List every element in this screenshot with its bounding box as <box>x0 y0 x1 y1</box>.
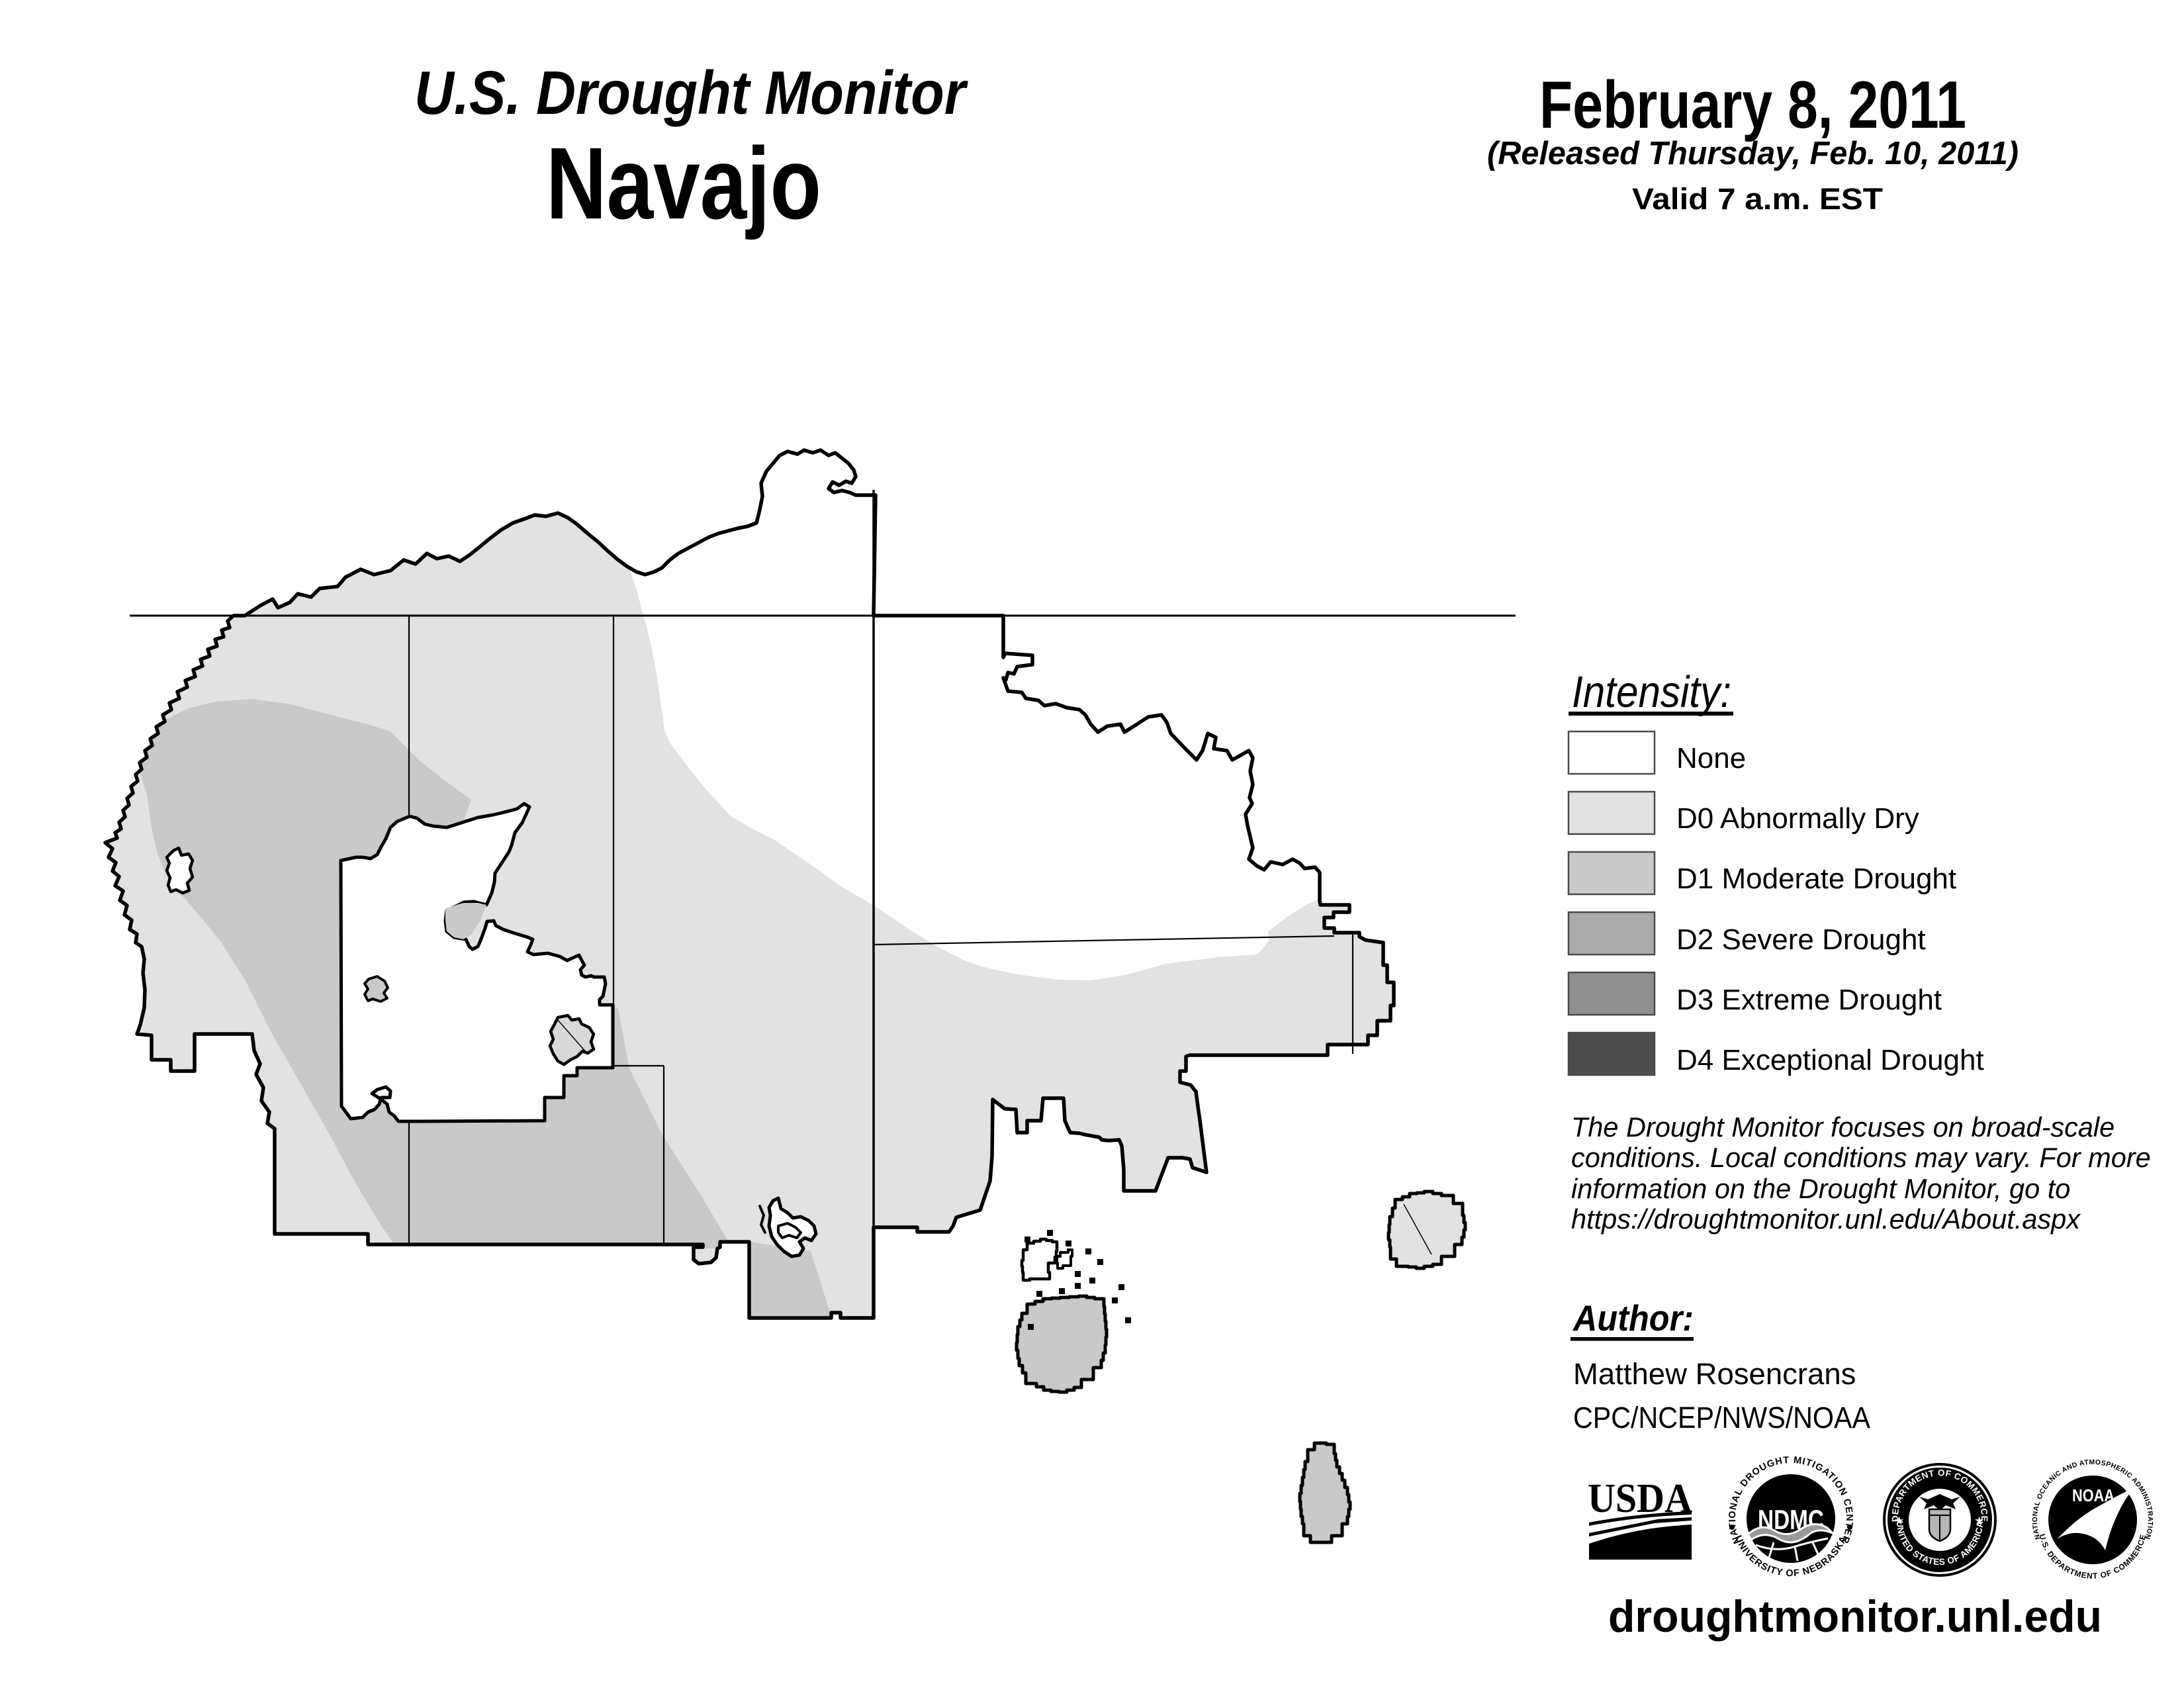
svg-text:Matthew Rosencrans: Matthew Rosencrans <box>1573 1357 1856 1391</box>
svg-text:(Released Thursday, Feb. 10, 2: (Released Thursday, Feb. 10, 2011) <box>1487 136 2019 171</box>
svg-text:D0 Abnormally Dry: D0 Abnormally Dry <box>1676 802 1919 835</box>
svg-text:★: ★ <box>1974 1515 1984 1527</box>
svg-text:D1 Moderate Drought: D1 Moderate Drought <box>1676 863 1956 895</box>
svg-text:conditions. Local conditions m: conditions. Local conditions may vary. F… <box>1571 1142 2151 1173</box>
svg-text:D3 Extreme Drought: D3 Extreme Drought <box>1676 984 1942 1016</box>
svg-text:NOAA: NOAA <box>2072 1485 2115 1505</box>
svg-text:Navajo: Navajo <box>546 126 821 240</box>
svg-text:CPC/NCEP/NWS/NOAA: CPC/NCEP/NWS/NOAA <box>1573 1401 1871 1434</box>
svg-text:information on the Drought Mon: information on the Drought Monitor, go t… <box>1571 1173 2070 1204</box>
svg-text:Valid 7 a.m. EST: Valid 7 a.m. EST <box>1632 182 1883 216</box>
svg-text:D2 Severe Drought: D2 Severe Drought <box>1676 923 1926 956</box>
svg-text:https://droughtmonitor.unl.edu: https://droughtmonitor.unl.edu/About.asp… <box>1571 1203 2081 1235</box>
svg-text:Author:: Author: <box>1572 1297 1694 1338</box>
svg-text:Intensity:: Intensity: <box>1572 667 1731 717</box>
svg-text:February 8, 2011: February 8, 2011 <box>1539 68 1966 142</box>
svg-text:D4 Exceptional Drought: D4 Exceptional Drought <box>1676 1044 1984 1076</box>
svg-text:The Drought Monitor focuses on: The Drought Monitor focuses on broad-sca… <box>1571 1111 2115 1143</box>
svg-text:None: None <box>1676 742 1746 774</box>
svg-text:★: ★ <box>1894 1515 1904 1527</box>
svg-text:droughtmonitor.unl.edu: droughtmonitor.unl.edu <box>1608 1591 2102 1642</box>
svg-text:U.S. Drought Monitor: U.S. Drought Monitor <box>414 58 968 127</box>
